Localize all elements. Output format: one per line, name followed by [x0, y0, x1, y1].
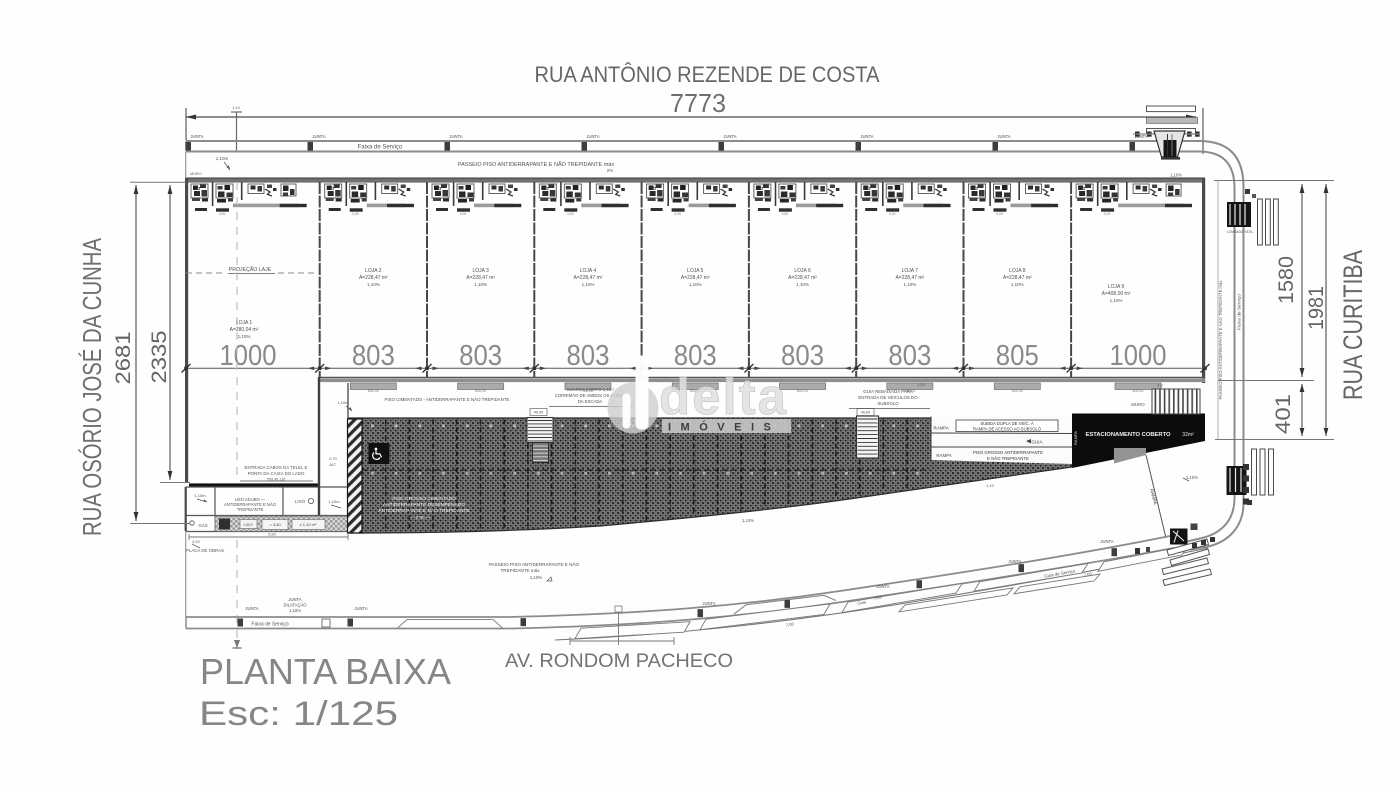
svg-text:LOJA 3: LOJA 3 — [472, 268, 489, 274]
svg-text:ANTIDERRAPANTE DESEMPENADO: ANTIDERRAPANTE DESEMPENADO — [383, 502, 465, 508]
svg-text:401: 401 — [1272, 394, 1295, 434]
svg-text:1,10: 1,10 — [917, 382, 926, 387]
svg-text:1,10%: 1,10% — [582, 282, 595, 287]
svg-text:RUA OSÓRIO JOSÉ DA CUNHA: RUA OSÓRIO JOSÉ DA CUNHA — [77, 237, 107, 536]
svg-text:ENTRADA DE VEÍCULOS DO: ENTRADA DE VEÍCULOS DO — [858, 395, 918, 400]
svg-text:1,10%: 1,10% — [367, 282, 380, 287]
svg-text:600,00: 600,00 — [475, 389, 486, 393]
svg-text:600,00: 600,00 — [1133, 389, 1144, 393]
svg-text:0,00: 0,00 — [674, 212, 681, 216]
svg-text:0,00: 0,00 — [567, 212, 574, 216]
svg-text:= 3,40: = 3,40 — [269, 522, 281, 527]
svg-text:ALT.: ALT. — [329, 463, 336, 467]
svg-text:A=228,47 m²: A=228,47 m² — [788, 275, 817, 281]
svg-text:600,00: 600,00 — [797, 389, 808, 393]
svg-text:1,10%: 1,10% — [903, 282, 916, 287]
svg-text:JUNTA: JUNTA — [702, 601, 715, 606]
svg-text:SUBIDA DUPLA DE VEÍC. À: SUBIDA DUPLA DE VEÍC. À — [980, 421, 1033, 426]
svg-text:805: 805 — [996, 340, 1039, 372]
svg-text:JUNTA: JUNTA — [190, 134, 203, 139]
svg-text:1,10: 1,10 — [232, 105, 241, 110]
svg-text:5,80: 5,80 — [268, 532, 277, 537]
svg-text:600,00: 600,00 — [368, 389, 379, 393]
svg-text:PLACA DE OBRAS: PLACA DE OBRAS — [186, 548, 224, 553]
svg-text:ESTACIONAMENTO COBERTO: ESTACIONAMENTO COBERTO — [1085, 432, 1171, 438]
svg-text:0,00: 0,00 — [219, 212, 226, 216]
svg-text:1,10%: 1,10% — [742, 518, 754, 523]
svg-text:JUNTA: JUNTA — [876, 584, 889, 589]
svg-text:2681: 2681 — [112, 332, 135, 385]
svg-text:803: 803 — [888, 340, 931, 372]
svg-text:Faixa de Serviço: Faixa de Serviço — [1237, 294, 1243, 330]
svg-text:Faixa de Serviço: Faixa de Serviço — [251, 622, 288, 628]
svg-text:0,00: 0,00 — [889, 212, 896, 216]
svg-text:RUA ANTÔNIO REZENDE DE COSTA: RUA ANTÔNIO REZENDE DE COSTA — [535, 62, 880, 87]
svg-text:A=228,47 m²: A=228,47 m² — [359, 275, 388, 281]
svg-text:2%: 2% — [607, 168, 614, 173]
svg-text:PLANTA BAIXA: PLANTA BAIXA — [200, 651, 451, 692]
svg-text:1000: 1000 — [220, 340, 277, 372]
svg-text:JUNTA: JUNTA — [354, 606, 367, 611]
svg-text:LOJA 5: LOJA 5 — [687, 268, 704, 274]
svg-text:1,10%: 1,10% — [796, 282, 809, 287]
svg-text:A=228,47 m²: A=228,47 m² — [1003, 275, 1032, 281]
svg-text:PONTA DA CAIXA DO LADO: PONTA DA CAIXA DO LADO — [248, 471, 305, 476]
svg-text:1981: 1981 — [1305, 286, 1328, 330]
svg-text:1,10%: 1,10% — [474, 282, 487, 287]
svg-text:1,10%: 1,10% — [1110, 298, 1123, 303]
svg-text:x 1,10 m²: x 1,10 m² — [300, 522, 317, 527]
svg-text:AV. RONDOM PACHECO: AV. RONDOM PACHECO — [505, 651, 733, 672]
svg-text:LOMBADA TÁTIL: LOMBADA TÁTIL — [1227, 230, 1254, 234]
svg-text:2335: 2335 — [148, 331, 171, 384]
svg-text:1,10m: 1,10m — [328, 499, 340, 504]
svg-text:0,00: 0,00 — [1104, 212, 1111, 216]
svg-text:GÁS: GÁS — [198, 523, 207, 528]
svg-text:LOJA 4: LOJA 4 — [580, 268, 597, 274]
svg-text:RAMPA: RAMPA — [936, 453, 951, 458]
svg-text:0,70: 0,70 — [329, 457, 336, 461]
svg-text:0,00: 0,00 — [460, 212, 467, 216]
svg-text:PASSEIO PISO ANTIDERRAPANTE E: PASSEIO PISO ANTIDERRAPANTE E NÃO — [489, 561, 580, 567]
svg-text:1,10%: 1,10% — [689, 282, 702, 287]
svg-text:JUNTA: JUNTA — [312, 134, 325, 139]
svg-text:Faixa de Serviço: Faixa de Serviço — [358, 145, 403, 151]
svg-text:803: 803 — [352, 340, 395, 372]
svg-text:LOJA 9: LOJA 9 — [1108, 284, 1125, 290]
svg-text:TREPIDANTE máx: TREPIDANTE máx — [500, 568, 540, 573]
svg-text:LOJA 2: LOJA 2 — [365, 268, 382, 274]
svg-text:JUNTA: JUNTA — [860, 134, 873, 139]
svg-text:40,00: 40,00 — [534, 411, 544, 415]
svg-text:GUIA: GUIA — [1031, 440, 1043, 445]
svg-text:0,00: 0,00 — [352, 212, 359, 216]
svg-text:1,10%: 1,10% — [1170, 173, 1182, 178]
svg-text:40,00: 40,00 — [861, 411, 871, 415]
svg-text:PASSEIO PISO ANTIDERRAPANTE E: PASSEIO PISO ANTIDERRAPANTE E NÃO TREPID… — [458, 161, 614, 168]
svg-text:MURO: MURO — [1131, 402, 1145, 407]
svg-text:— 2 % —: — 2 % — — [410, 515, 431, 521]
svg-text:7773: 7773 — [670, 88, 726, 118]
svg-text:A=408,00 m²: A=408,00 m² — [1102, 291, 1131, 297]
svg-text:803: 803 — [459, 340, 502, 372]
svg-text:1,10%: 1,10% — [1186, 475, 1198, 480]
svg-text:ENTRADA CABOS DA TELEL E: ENTRADA CABOS DA TELEL E — [245, 465, 308, 470]
svg-text:TREPIDANTE: TREPIDANTE — [237, 507, 264, 512]
svg-text:RAMPA DE ACESSO AO SUBSOLO: RAMPA DE ACESSO AO SUBSOLO — [973, 427, 1042, 432]
svg-text:delta: delta — [659, 368, 788, 425]
svg-text:A=228,47 m²: A=228,47 m² — [681, 275, 710, 281]
svg-text:JUNTA: JUNTA — [586, 134, 599, 139]
svg-text:TELELUZ: TELELUZ — [267, 477, 286, 482]
svg-text:MURO: MURO — [190, 172, 202, 176]
svg-text:IMÓVEIS: IMÓVEIS — [668, 421, 780, 434]
svg-text:LOJA 8: LOJA 8 — [1009, 268, 1026, 274]
svg-text:A=228,47 m²: A=228,47 m² — [895, 275, 924, 281]
svg-text:RAMPA: RAMPA — [1073, 431, 1078, 445]
svg-text:4,0: 4,0 — [1157, 383, 1163, 388]
svg-text:0,00: 0,00 — [996, 212, 1003, 216]
svg-text:4,50: 4,50 — [192, 539, 201, 544]
svg-text:PISO GROSSO ANTIDERRAPANTE: PISO GROSSO ANTIDERRAPANTE — [973, 450, 1043, 455]
svg-text:A=228,47 m²: A=228,47 m² — [466, 275, 495, 281]
svg-text:Esc: 1/125: Esc: 1/125 — [199, 695, 398, 733]
svg-text:A=228,47 m²: A=228,47 m² — [574, 275, 603, 281]
svg-text:32m²: 32m² — [1182, 432, 1194, 438]
svg-text:RAMPA: RAMPA — [933, 426, 948, 431]
svg-text:1,10m: 1,10m — [194, 493, 206, 498]
svg-text:1,10m: 1,10m — [216, 156, 229, 161]
svg-text:DILATAÇÃO: DILATAÇÃO — [283, 603, 307, 608]
svg-text:DA ESCADA: DA ESCADA — [578, 399, 603, 404]
svg-text:LIXO: LIXO — [243, 522, 252, 527]
svg-text:1,10%: 1,10% — [238, 334, 251, 339]
svg-text:1,10: 1,10 — [986, 483, 995, 488]
svg-text:JUNTA: JUNTA — [449, 134, 462, 139]
svg-text:PROJEÇÃO LAJE: PROJEÇÃO LAJE — [229, 266, 272, 273]
svg-text:LOJA 6: LOJA 6 — [794, 268, 811, 274]
svg-text:JUNTA: JUNTA — [1008, 559, 1021, 564]
svg-text:PISO GROSSO CIMENTADO: PISO GROSSO CIMENTADO — [392, 496, 456, 502]
svg-text:JUNTA: JUNTA — [997, 134, 1010, 139]
svg-text:ANTIDERRAPANTE E NÃO TREPIDANT: ANTIDERRAPANTE E NÃO TREPIDANTE — [378, 507, 469, 514]
svg-text:JUNTA: JUNTA — [288, 597, 301, 602]
svg-text:PASSEIO PISO ANTIDERRAPANTE E: PASSEIO PISO ANTIDERRAPANTE E NÃO TREPID… — [1218, 280, 1223, 400]
svg-text:SUBSOLO: SUBSOLO — [877, 401, 899, 406]
svg-text:RUA CURITIBA: RUA CURITIBA — [1338, 250, 1368, 400]
svg-text:GUIA REBAIXADA PARA: GUIA REBAIXADA PARA — [863, 389, 913, 394]
svg-text:1,10%: 1,10% — [1011, 282, 1024, 287]
svg-text:1000: 1000 — [1110, 340, 1167, 372]
svg-text:A=280,04 m²: A=280,04 m² — [230, 327, 259, 333]
svg-text:JUNTA: JUNTA — [723, 134, 736, 139]
svg-text:1,10%: 1,10% — [530, 575, 543, 580]
svg-text:0,00: 0,00 — [782, 212, 789, 216]
svg-text:E NÃO TREPIDANTE: E NÃO TREPIDANTE — [987, 456, 1029, 461]
svg-text:JUNTA: JUNTA — [245, 606, 258, 611]
svg-text:600,00: 600,00 — [1012, 389, 1023, 393]
svg-text:1580: 1580 — [1275, 256, 1298, 304]
svg-text:1,10m: 1,10m — [337, 400, 349, 405]
svg-text:GUARDA CORPO 1,10 /: GUARDA CORPO 1,10 / — [566, 387, 614, 392]
svg-text:PISO CIMENTADO - ANTIDERRAPA: PISO CIMENTADO - ANTIDERRAPANTE E NÃO TR… — [385, 397, 510, 402]
svg-text:LOJA 7: LOJA 7 — [902, 268, 919, 274]
svg-text:JUNTA: JUNTA — [1100, 539, 1113, 544]
svg-text:1,10m: 1,10m — [289, 608, 301, 613]
svg-text:LOJA 1: LOJA 1 — [236, 320, 253, 326]
svg-text:803: 803 — [566, 340, 609, 372]
svg-text:LIXO: LIXO — [295, 499, 306, 504]
